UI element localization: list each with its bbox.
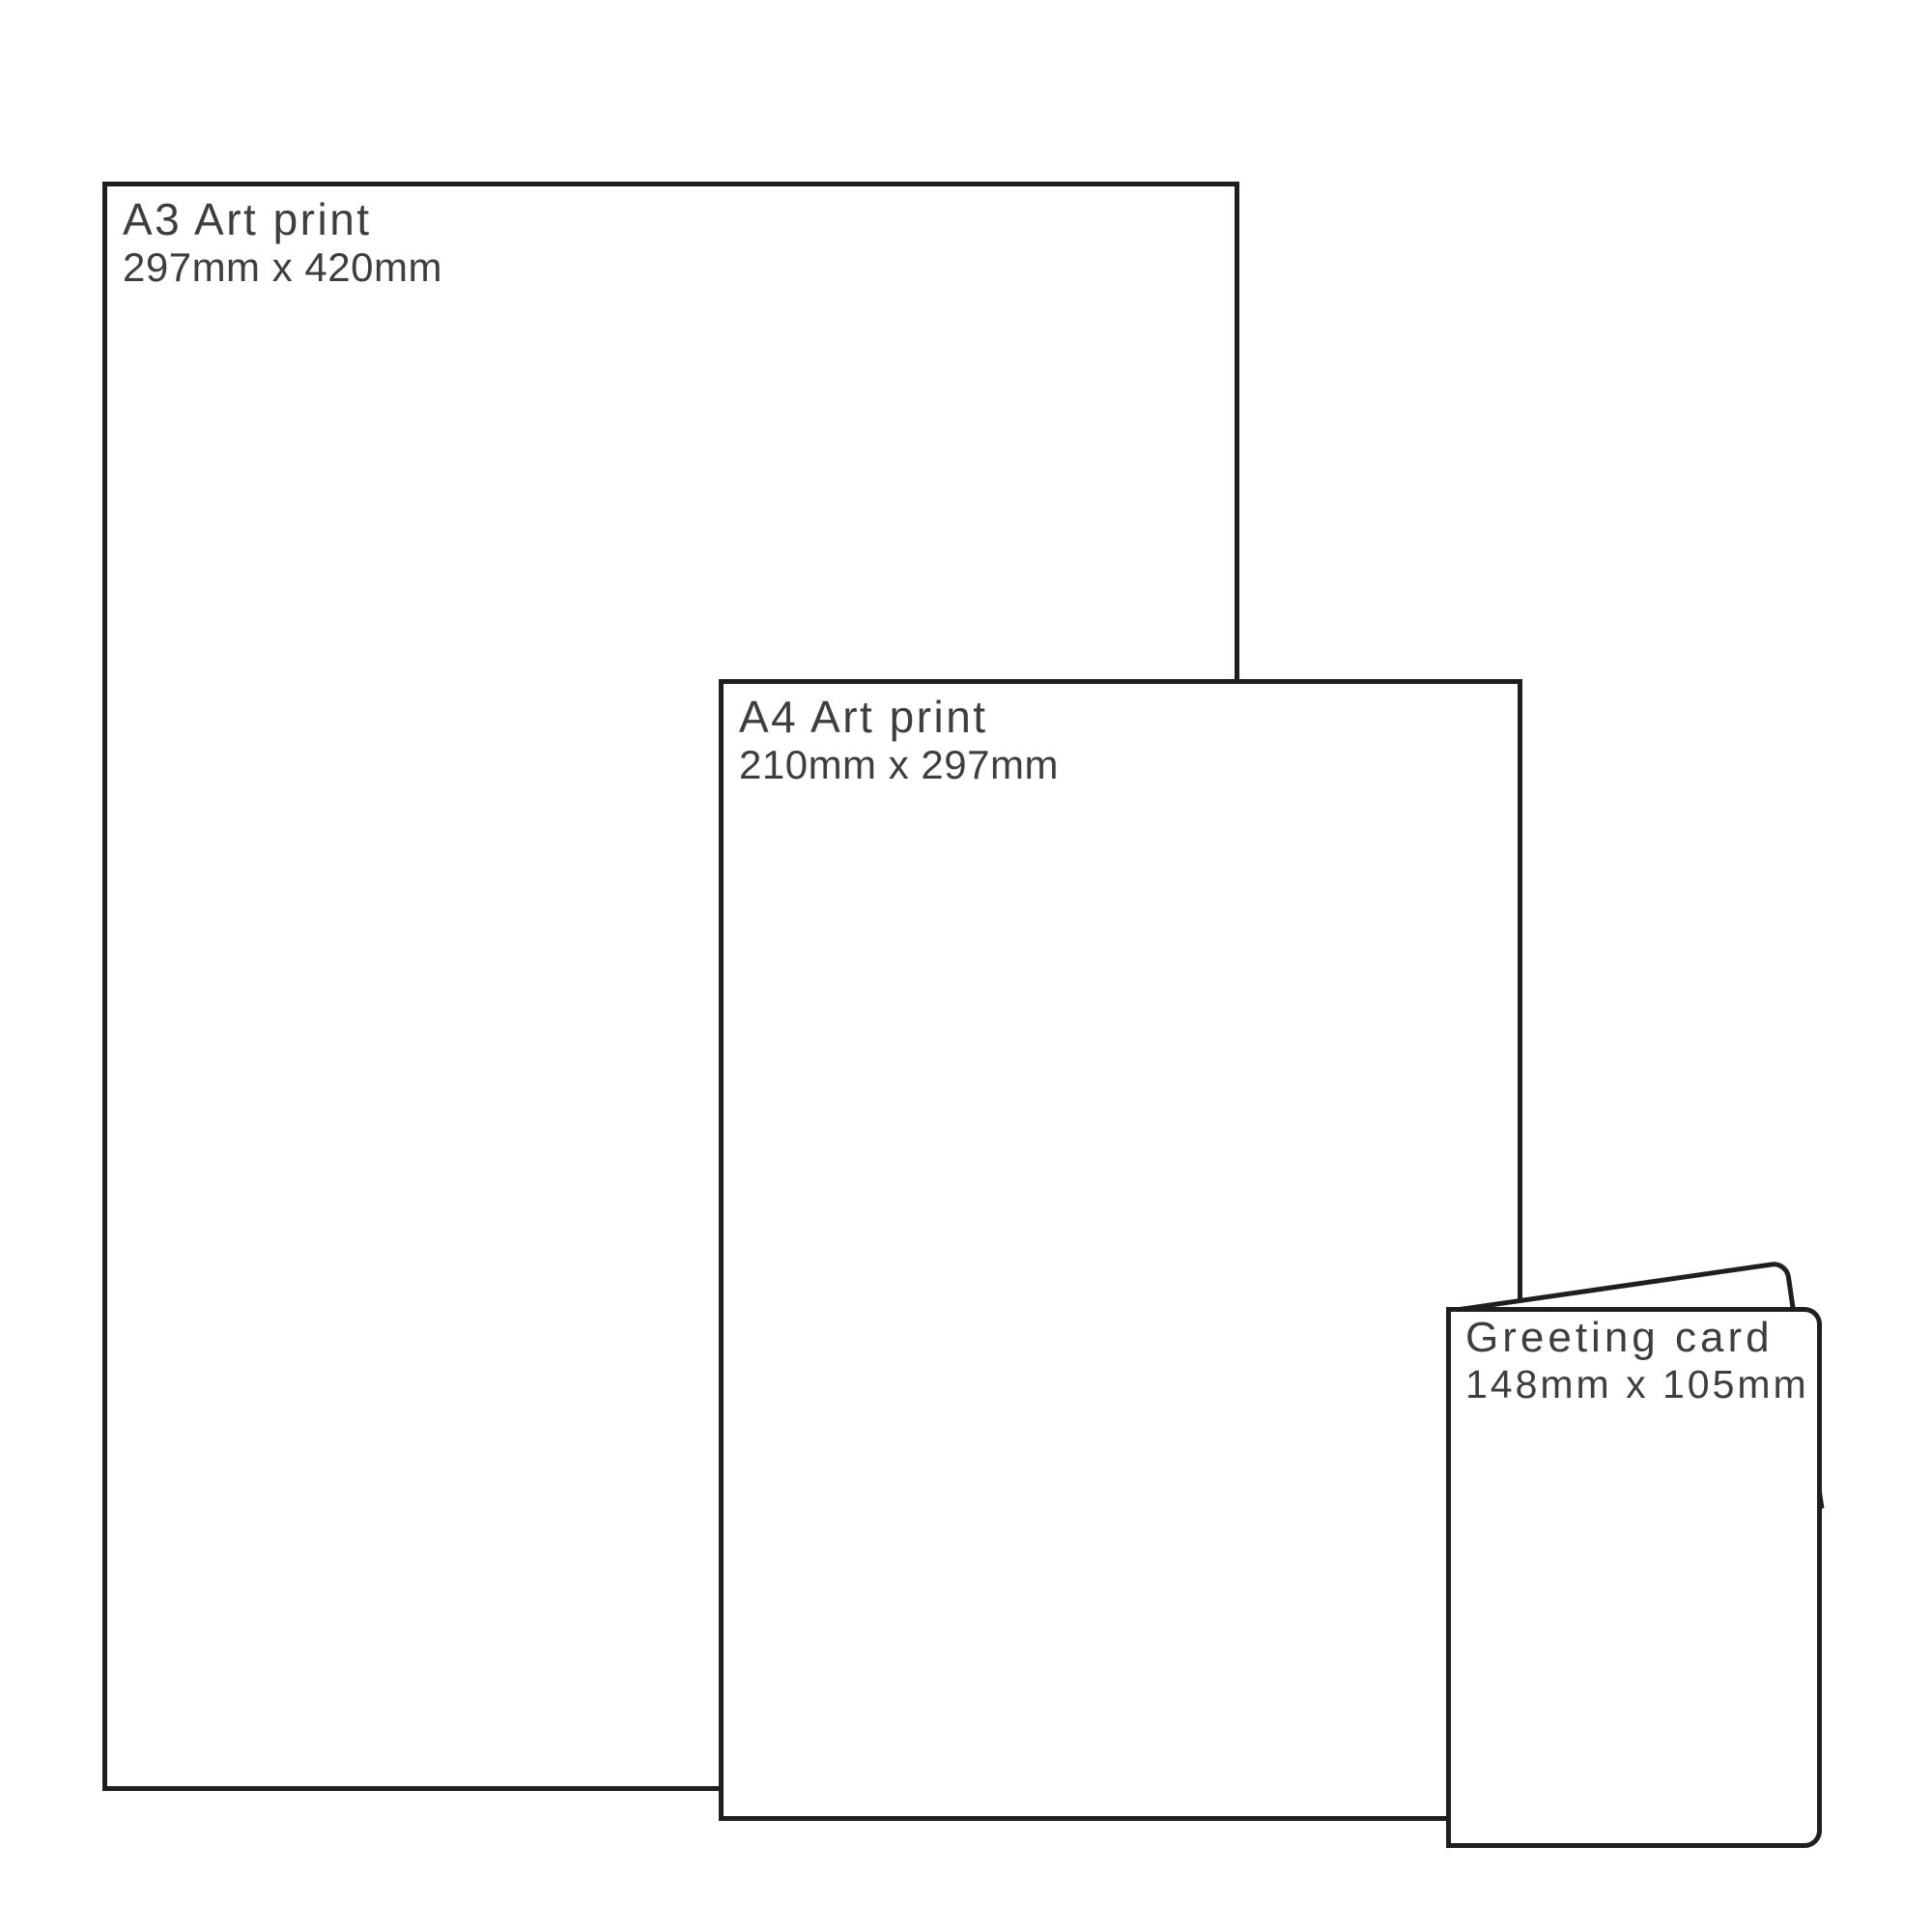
a3-title: A3 Art print bbox=[123, 196, 1235, 242]
a4-title: A4 Art print bbox=[739, 694, 1518, 740]
greeting-card-label: Greeting card 148mm x 105mm bbox=[1451, 1312, 1817, 1408]
a4-sheet-outline: A4 Art print 210mm x 297mm bbox=[719, 679, 1522, 1821]
a4-label: A4 Art print 210mm x 297mm bbox=[724, 684, 1518, 790]
greeting-card-outline: Greeting card 148mm x 105mm bbox=[1446, 1307, 1822, 1848]
a3-dimensions: 297mm x 420mm bbox=[123, 242, 1235, 292]
a4-dimensions: 210mm x 297mm bbox=[739, 740, 1518, 789]
greeting-card-title: Greeting card bbox=[1465, 1316, 1817, 1360]
greeting-card-dimensions: 148mm x 105mm bbox=[1465, 1360, 1817, 1408]
print-size-comparison-diagram: A3 Art print 297mm x 420mm A4 Art print … bbox=[0, 0, 1932, 1932]
a3-label: A3 Art print 297mm x 420mm bbox=[107, 186, 1235, 293]
